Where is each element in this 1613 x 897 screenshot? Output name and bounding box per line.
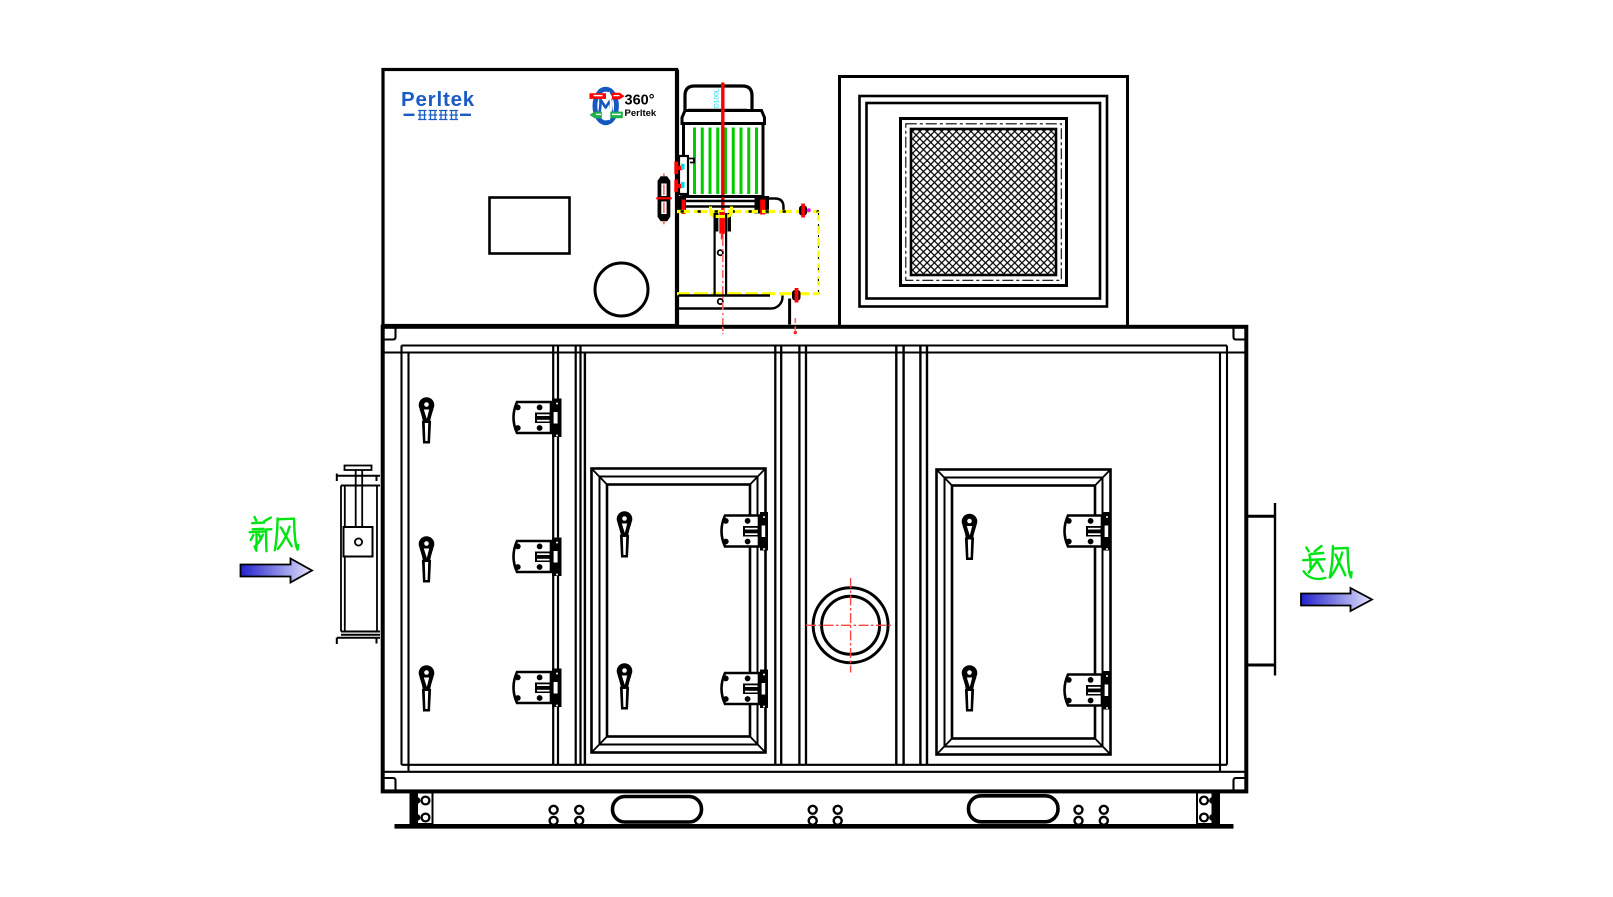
svg-text:360°: 360° [625,93,655,109]
svg-text:D100L: D100L [713,88,720,108]
svg-text:Perltek: Perltek [625,108,657,119]
svg-text:Perltek: Perltek [401,88,475,111]
